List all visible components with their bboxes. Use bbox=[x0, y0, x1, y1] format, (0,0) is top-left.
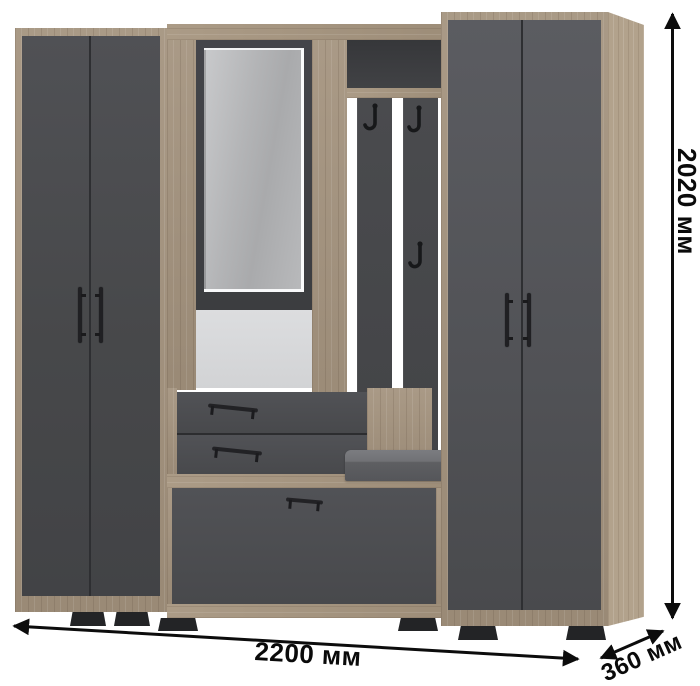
cabinet-foot bbox=[158, 618, 198, 631]
wardrobe-foot bbox=[458, 626, 498, 640]
middle-top-cornice bbox=[167, 24, 441, 40]
door-handle bbox=[78, 287, 82, 343]
wardrobe-foot bbox=[566, 626, 606, 640]
small-drawer-bottom bbox=[177, 435, 367, 474]
coat-hook-icon bbox=[406, 104, 428, 140]
product-scene: 2020 мм 2200 мм 360 мм bbox=[0, 0, 700, 686]
door-handle bbox=[99, 287, 103, 343]
drawer-block-left-edge bbox=[167, 388, 177, 476]
coat-hook-icon bbox=[407, 240, 429, 276]
right-wardrobe-door-right bbox=[523, 20, 601, 610]
bottom-cabinet-base bbox=[167, 604, 441, 618]
right-wardrobe bbox=[441, 12, 608, 626]
top-cubby-back bbox=[347, 40, 441, 88]
mirror-left-upright bbox=[167, 40, 196, 390]
height-dimension-label: 2020 мм bbox=[674, 148, 700, 255]
small-drawer-top bbox=[177, 392, 367, 433]
center-post bbox=[312, 40, 347, 452]
wardrobe-foot bbox=[114, 612, 150, 626]
door-handle bbox=[527, 293, 531, 347]
bench-cushion bbox=[345, 450, 448, 481]
bottom-drawer-front bbox=[172, 488, 436, 604]
cubby-shelf bbox=[347, 88, 441, 98]
right-wardrobe-door-left bbox=[448, 20, 521, 610]
mirror bbox=[204, 48, 304, 292]
cabinet-foot bbox=[398, 618, 438, 631]
open-niche-back-panel bbox=[196, 310, 312, 388]
door-handle bbox=[505, 293, 509, 347]
left-wardrobe bbox=[15, 28, 167, 612]
wardrobe-foot bbox=[70, 612, 106, 626]
width-dimension-label: 2200 мм bbox=[227, 637, 388, 672]
coat-hook-icon bbox=[362, 102, 384, 138]
depth-dimension-label: 360 мм bbox=[595, 628, 689, 686]
right-wardrobe-side-panel bbox=[608, 10, 644, 626]
